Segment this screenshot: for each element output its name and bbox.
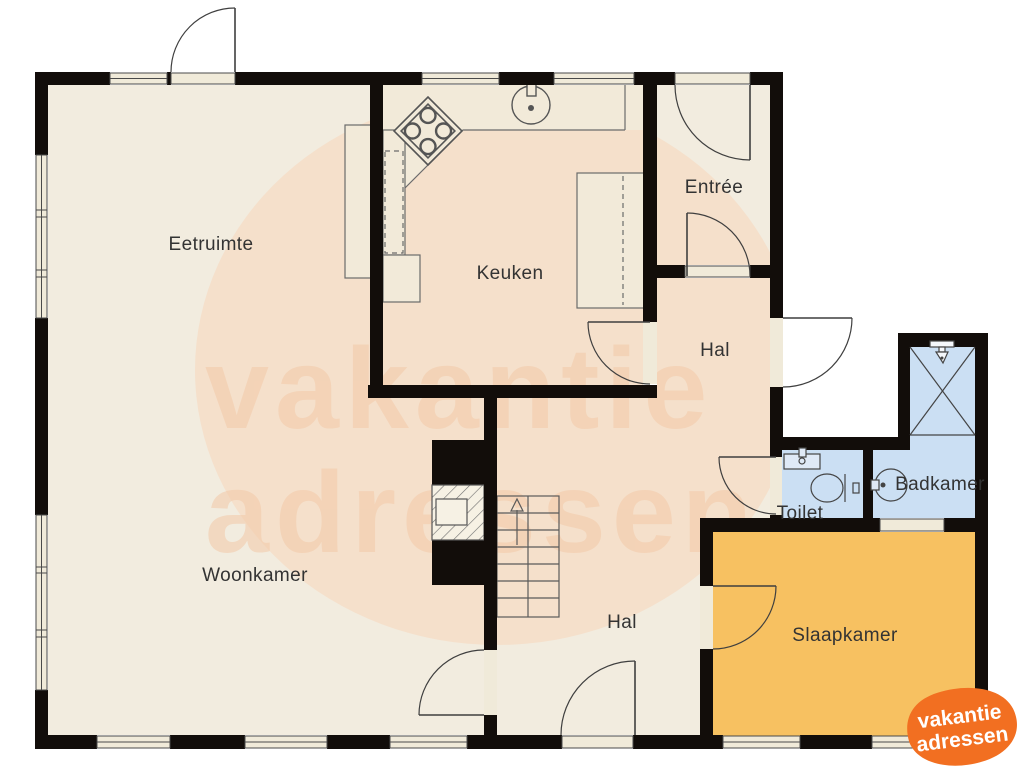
chimney-block bbox=[432, 440, 484, 585]
door-threshold bbox=[562, 736, 633, 748]
room-label-badkamer: Badkamer bbox=[895, 474, 985, 495]
room-label-eetruimte: Eetruimte bbox=[169, 234, 254, 255]
room-label-toilet: Toilet bbox=[777, 503, 824, 524]
door-threshold bbox=[685, 266, 750, 277]
dining-side-counter bbox=[345, 125, 372, 278]
door-threshold bbox=[880, 519, 944, 531]
door-threshold bbox=[675, 73, 750, 84]
tall-cabinet bbox=[577, 173, 647, 308]
room-label-woonkamer: Woonkamer bbox=[202, 565, 308, 586]
room-label-entree: Entrée bbox=[685, 177, 743, 198]
room-label-slaapkamer: Slaapkamer bbox=[792, 625, 898, 646]
door-opening bbox=[484, 650, 497, 715]
room-label-hal-bottom: Hal bbox=[607, 612, 637, 633]
door-dining-exterior bbox=[171, 8, 235, 72]
door-opening bbox=[643, 322, 657, 384]
floorplan-image: vakantie adressen bbox=[0, 0, 1024, 768]
room-label-hal-top: Hal bbox=[700, 340, 730, 361]
room-label-keuken: Keuken bbox=[477, 263, 544, 284]
kitchen-cabinet bbox=[383, 255, 420, 302]
door-hall-back bbox=[783, 318, 852, 387]
door-opening bbox=[770, 318, 783, 387]
door-threshold bbox=[171, 73, 235, 84]
door-opening bbox=[700, 586, 713, 649]
